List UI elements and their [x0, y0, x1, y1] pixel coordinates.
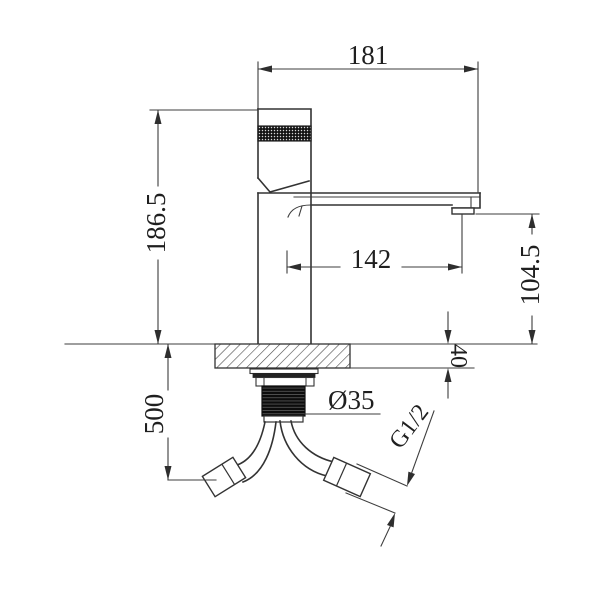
ext-line — [346, 493, 395, 513]
arrowhead — [529, 214, 536, 228]
spout-joint-tick — [299, 206, 302, 216]
arrowhead — [407, 472, 415, 486]
deck-slab-hatched — [215, 344, 350, 368]
arrowhead — [445, 368, 452, 382]
dim-spout-height-label: 104.5 — [515, 245, 545, 306]
dim-height-overall-label: 186.5 — [141, 193, 171, 254]
handle-chamfer — [258, 178, 270, 192]
thread-size-label: G1/2 — [385, 400, 435, 454]
shank-end-cap — [264, 416, 303, 422]
faucet-handle — [258, 109, 311, 344]
faucet-technical-drawing: 181 186.5 142 104.5 40 50 — [0, 0, 600, 600]
dimension-height-overall: 186.5 — [141, 110, 258, 344]
dim-hose-drop-label: 500 — [139, 394, 169, 435]
arrowhead — [387, 513, 395, 527]
dimension-hose-drop: 500 — [139, 344, 216, 480]
arrowhead — [155, 110, 162, 124]
arrow-tail — [381, 526, 390, 546]
hose-left-end-fitting — [202, 457, 245, 496]
hose-left-outer-wall — [234, 422, 265, 466]
dimension-spout-height: 104.5 — [476, 214, 545, 344]
arrowhead — [448, 264, 462, 271]
locknut — [256, 378, 314, 387]
threaded-shank — [262, 386, 305, 416]
dim-spout-reach-label: 142 — [351, 244, 392, 274]
handle-and-column-right-outline — [258, 109, 311, 344]
callout-hole-diameter: Ø35 — [305, 385, 380, 415]
knurled-grip-band — [258, 126, 311, 141]
arrowhead — [464, 66, 478, 73]
hose-right-outer-wall — [291, 421, 334, 462]
dimension-spout-reach: 142 — [287, 215, 462, 274]
arrowhead — [445, 330, 452, 344]
hose-right-end-fitting — [324, 457, 371, 496]
spout-arm — [258, 193, 480, 217]
arrowhead — [258, 66, 272, 73]
dimension-deck-thickness: 40 — [445, 312, 472, 398]
faucet-body — [258, 109, 480, 344]
arrowhead — [287, 264, 301, 271]
arrowhead — [155, 330, 162, 344]
handle-lever-seam — [270, 181, 309, 192]
drawing-canvas: 181 186.5 142 104.5 40 50 — [0, 0, 600, 600]
hole-diameter-label: Ø35 — [328, 385, 375, 415]
hose-left-inner-wall — [243, 422, 276, 482]
supply-hoses — [202, 421, 370, 497]
gasket — [253, 374, 315, 378]
dim-deck-thickness-label: 40 — [445, 344, 471, 368]
mounting-washer — [250, 369, 318, 374]
spout-right-end — [452, 193, 480, 208]
arrowhead — [165, 466, 172, 480]
arrowhead — [165, 344, 172, 358]
dimension-width-overall: 181 — [258, 40, 478, 193]
hose-right-inner-wall — [280, 421, 327, 476]
dim-width-overall-label: 181 — [348, 40, 389, 70]
arrowhead — [529, 330, 536, 344]
aerator-outlet — [452, 208, 474, 214]
